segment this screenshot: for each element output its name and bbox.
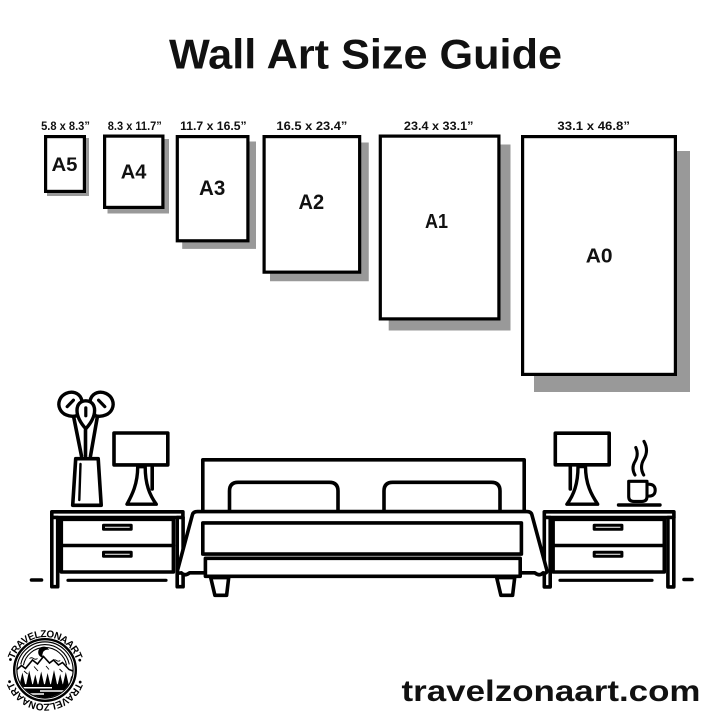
svg-text:A4: A4 — [121, 161, 147, 184]
svg-text:11.7 x 16.5”: 11.7 x 16.5” — [180, 119, 247, 133]
svg-text:8.3 x 11.7”: 8.3 x 11.7” — [108, 119, 162, 133]
svg-text:travelzonaart.com: travelzonaart.com — [402, 675, 701, 708]
svg-text:A3: A3 — [199, 177, 225, 200]
svg-text:Wall Art Size Guide: Wall Art Size Guide — [169, 30, 562, 77]
svg-text:A5: A5 — [52, 154, 78, 176]
svg-text:A1: A1 — [425, 210, 448, 233]
svg-text:33.1 x 46.8”: 33.1 x 46.8” — [557, 119, 630, 133]
svg-text:A0: A0 — [586, 244, 613, 267]
svg-text:23.4 x 33.1”: 23.4 x 33.1” — [404, 119, 474, 133]
svg-text:A2: A2 — [299, 190, 325, 214]
svg-text:5.8 x 8.3”: 5.8 x 8.3” — [41, 119, 90, 133]
svg-text:16.5 x 23.4”: 16.5 x 23.4” — [276, 119, 347, 133]
